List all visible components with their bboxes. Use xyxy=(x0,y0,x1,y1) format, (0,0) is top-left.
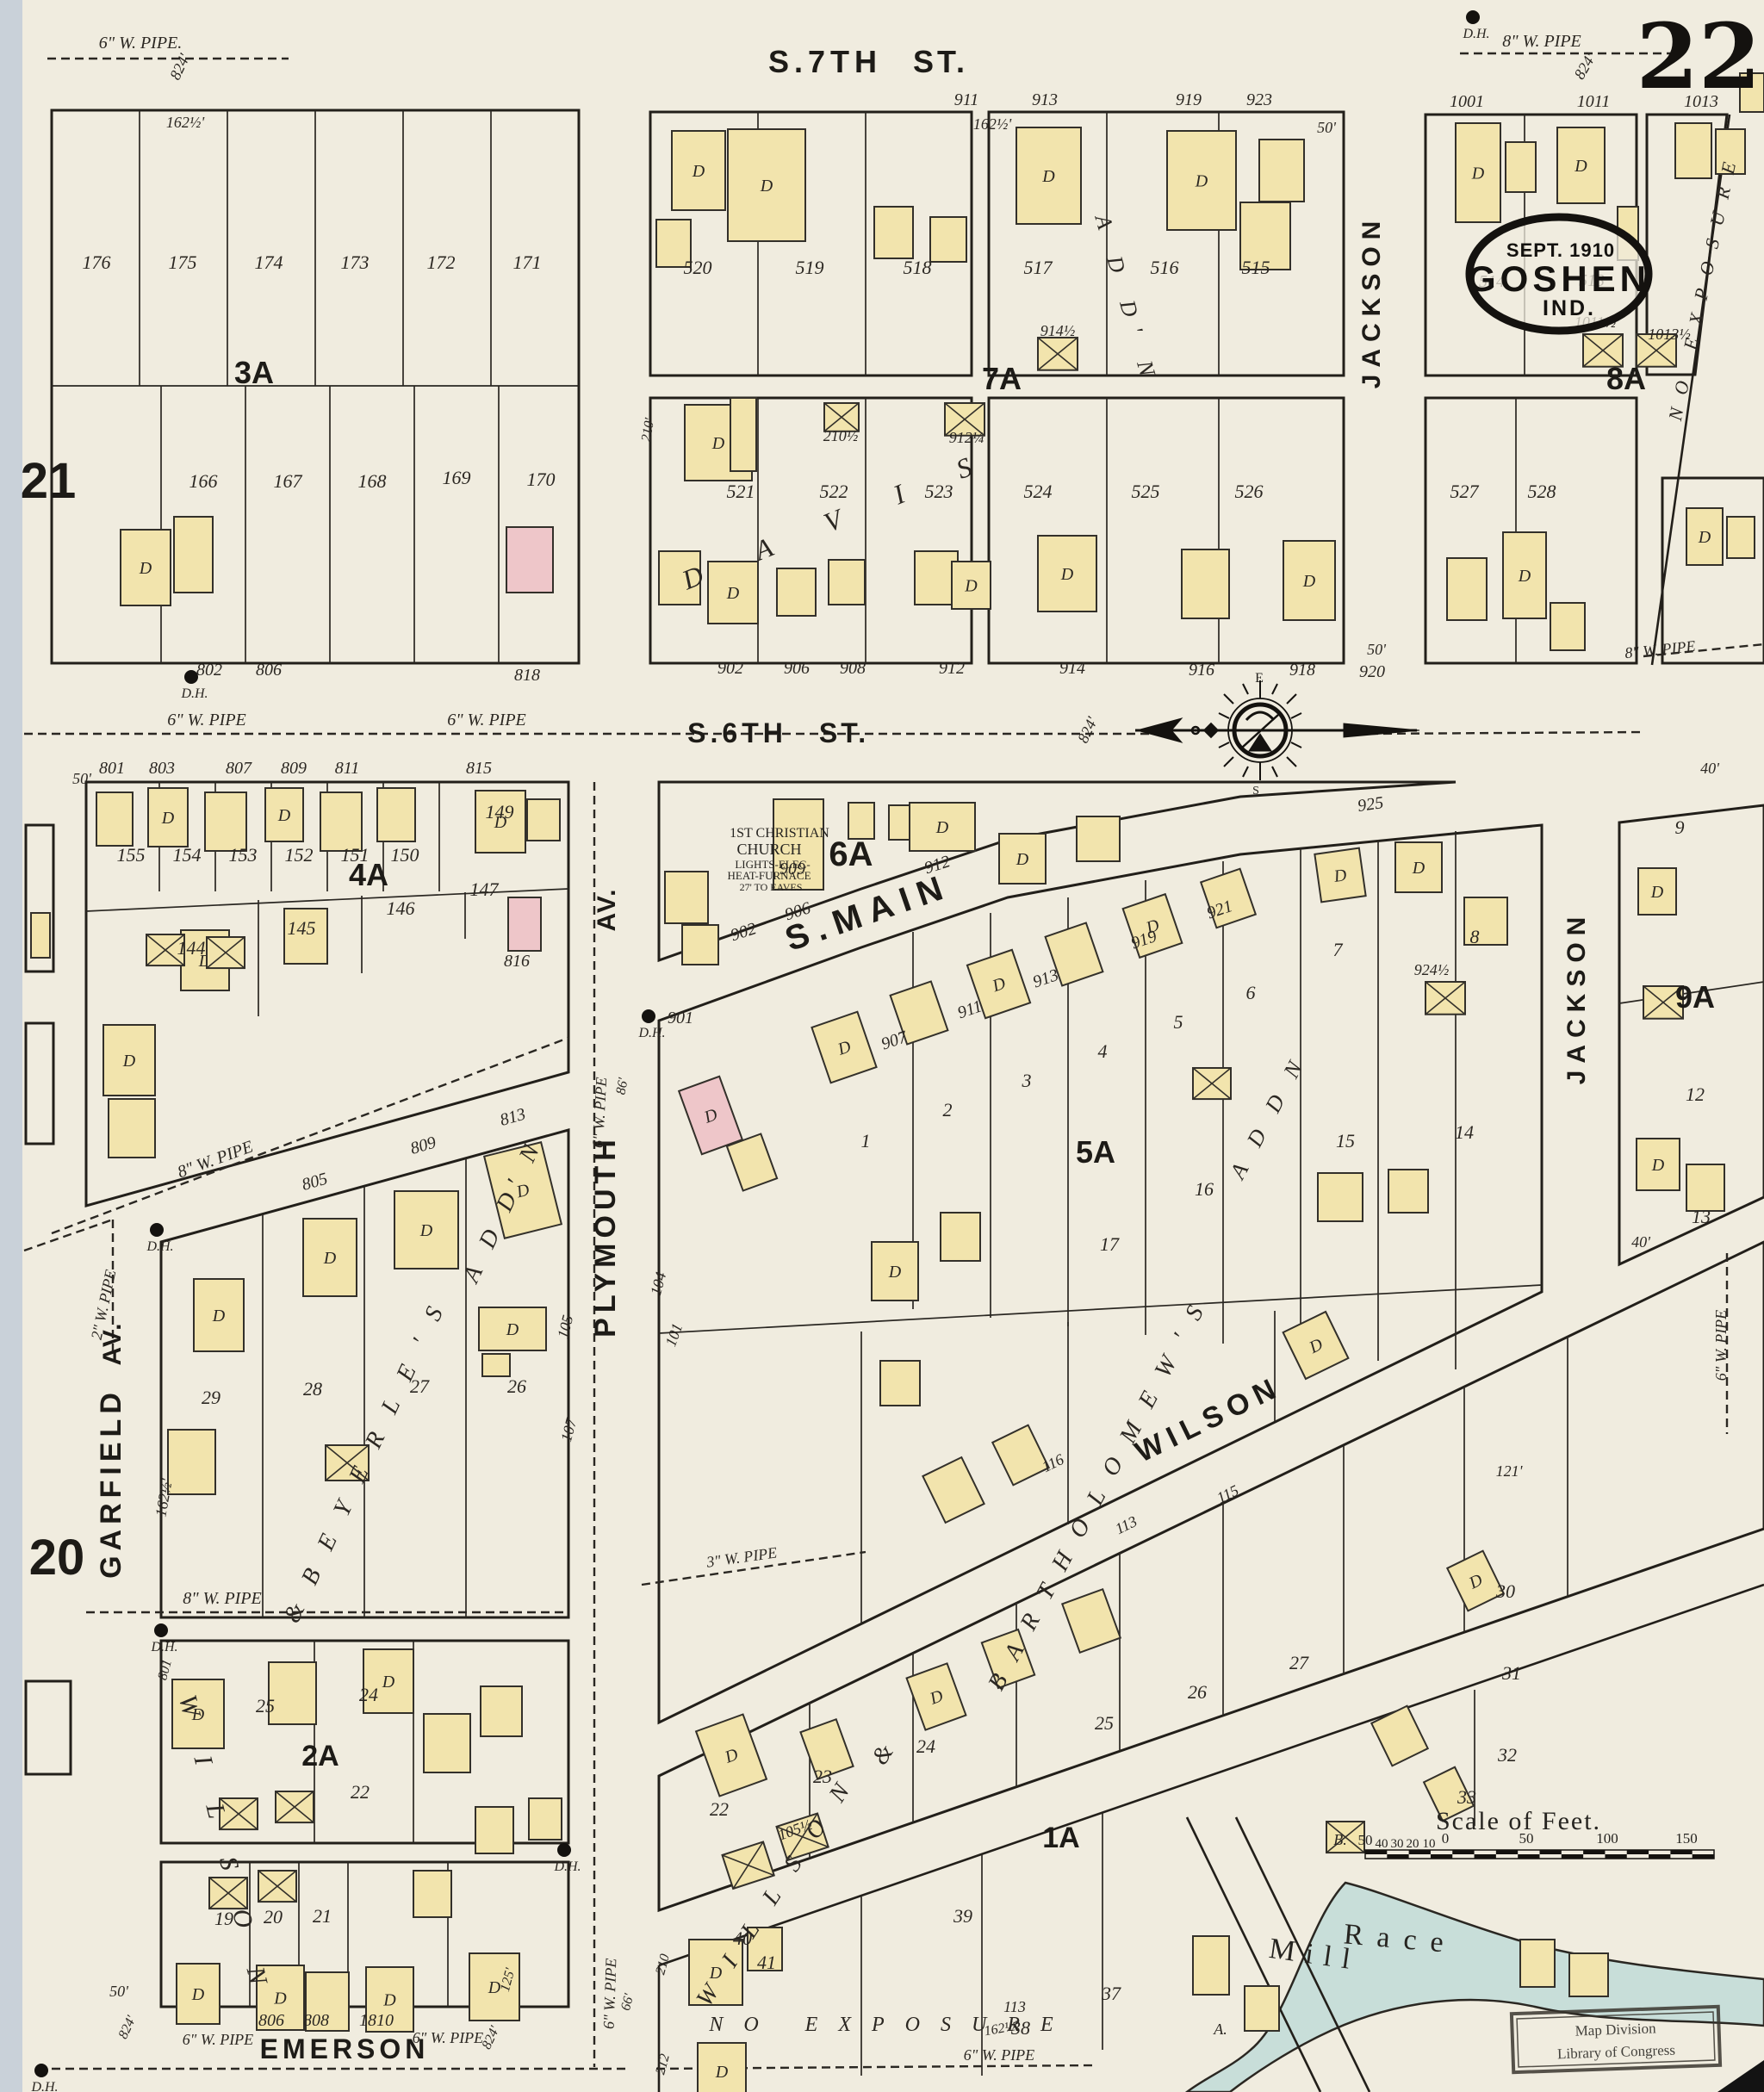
map-number-label: 802 xyxy=(196,661,222,680)
map-number-label: 27 xyxy=(1289,1652,1309,1673)
building-footprint xyxy=(848,803,874,839)
street-or-block-label: EMERSON xyxy=(260,2033,430,2064)
street-or-block-label: 2A xyxy=(301,1740,339,1772)
frame-building xyxy=(941,1213,980,1261)
map-number-label: 901 xyxy=(668,1009,693,1027)
building-footprint: D xyxy=(177,1964,220,2024)
building-footprint xyxy=(508,897,541,951)
annotation-label: 10 xyxy=(1423,1837,1436,1851)
map-number-label: 924½ xyxy=(1414,961,1450,978)
dwelling-mark: D xyxy=(191,1985,205,2004)
building-footprint xyxy=(529,1798,562,1840)
map-number-label: 523 xyxy=(925,481,953,502)
frame-building xyxy=(168,1430,215,1494)
building-footprint: D xyxy=(952,562,991,609)
hydrant-dot xyxy=(150,1223,164,1237)
building-footprint xyxy=(1259,140,1304,202)
hydrant-dot xyxy=(642,1009,655,1023)
dwelling-mark: D xyxy=(964,577,978,596)
scale-cell xyxy=(1540,1850,1562,1854)
street-or-block-label: 7A xyxy=(982,361,1022,396)
map-number-label: 2 xyxy=(943,1099,953,1120)
scale-title: Scale of Feet. xyxy=(1436,1807,1601,1835)
building-footprint: D xyxy=(910,803,975,851)
scale-cell xyxy=(1649,1854,1670,1859)
building-footprint xyxy=(168,1430,215,1494)
map-number-label: 1013½ xyxy=(1648,326,1691,343)
sanborn-map-sheet: DDDDDDDDDDDDDDDDDDDDDDDDDDDDDDDDDDDDDDDD… xyxy=(0,0,1764,2092)
frame-building xyxy=(665,872,708,923)
hydrant-dot xyxy=(1466,10,1480,24)
building-footprint: D xyxy=(194,1279,244,1351)
map-number-label: 12 xyxy=(1686,1083,1705,1105)
barn-icon xyxy=(276,1791,314,1822)
city-name: GOSHEN xyxy=(1468,258,1650,299)
frame-building xyxy=(482,1354,510,1376)
map-number-label: 210½ xyxy=(823,427,859,444)
building-footprint xyxy=(424,1714,470,1772)
barn-icon xyxy=(258,1871,296,1902)
map-number-label: 525 xyxy=(1132,481,1160,502)
building-footprint: D xyxy=(1395,842,1442,892)
street-or-block-label: GARFIELD xyxy=(95,1387,127,1579)
scale-cell xyxy=(1670,1850,1692,1854)
map-number-label: 9 xyxy=(1675,816,1685,838)
map-number-label: 923 xyxy=(1246,90,1272,109)
frame-building xyxy=(1259,140,1304,202)
map-number-label: 920 xyxy=(1359,662,1385,681)
map-number-label: 816 xyxy=(504,952,530,971)
map-number-label: 33 xyxy=(1457,1786,1476,1808)
frame-building xyxy=(96,792,133,846)
building-footprint xyxy=(475,1807,513,1853)
map-number-label: 6" W. PIPE xyxy=(413,2029,483,2046)
frame-building xyxy=(413,1871,451,1917)
map-number-label: 162½' xyxy=(166,114,206,131)
map-number-label: 517 xyxy=(1024,257,1053,278)
building-footprint xyxy=(109,1099,155,1158)
brick-building xyxy=(506,527,553,593)
scale-cell xyxy=(1693,1854,1714,1859)
frame-building xyxy=(930,217,966,262)
building-footprint xyxy=(377,788,415,841)
map-number-label: 6" W. PIPE xyxy=(167,711,246,729)
scale-cell xyxy=(1452,1850,1474,1854)
map-number-label: 145 xyxy=(288,917,316,939)
frame-building xyxy=(527,799,560,841)
building-footprint: D xyxy=(303,1219,357,1296)
hydrant-label: D.H. xyxy=(1462,27,1489,41)
map-number-label: 918 xyxy=(1289,661,1315,680)
scale-cell xyxy=(1562,1854,1583,1859)
map-number-label: 121' xyxy=(1496,1462,1524,1480)
map-number-label: 6" W. PIPE. xyxy=(99,34,183,53)
map-number-label: 23 xyxy=(813,1766,832,1787)
map-number-label: 811 xyxy=(335,759,360,778)
map-number-label: 6" W. PIPE xyxy=(183,2031,253,2048)
map-number-label: 518 xyxy=(904,257,932,278)
building-footprint: D xyxy=(394,1191,458,1269)
dwelling-mark: D xyxy=(382,1991,396,2010)
annotation-label: 40 xyxy=(1376,1837,1388,1851)
street-or-block-label: ST. xyxy=(913,44,968,79)
frame-building xyxy=(269,1662,316,1724)
map-number-label: 6" W. PIPE xyxy=(600,1958,620,2029)
map-number-label: 50' xyxy=(72,770,92,787)
frame-building xyxy=(829,560,865,605)
map-number-label: 906 xyxy=(784,659,810,678)
building-footprint xyxy=(665,872,708,923)
frame-building xyxy=(481,1686,522,1736)
frame-building xyxy=(377,788,415,841)
map-number-label: 166 xyxy=(189,470,218,492)
map-number-label: 40' xyxy=(1700,760,1720,777)
street-or-block-label: 9A xyxy=(1675,979,1715,1015)
map-number-label: 914 xyxy=(1059,659,1085,678)
map-number-label: 22 xyxy=(710,1798,729,1820)
frame-building xyxy=(31,913,50,958)
map-number-label: 86' xyxy=(614,1077,631,1096)
building-footprint xyxy=(777,568,816,616)
map-number-label: 50' xyxy=(109,1983,129,2000)
map-number-label: 806 xyxy=(258,2011,284,2030)
map-number-label: 919 xyxy=(1176,90,1202,109)
building-footprint: D xyxy=(1637,1139,1680,1190)
map-number-label: 24 xyxy=(916,1735,935,1757)
annotation-label: CHURCH xyxy=(736,841,801,858)
map-number-label: 153 xyxy=(229,844,258,866)
map-number-label: 520 xyxy=(684,257,712,278)
map-number-label: 151 xyxy=(341,844,370,866)
building-footprint xyxy=(1388,1170,1428,1213)
annotation-label: 27' TO EAVES xyxy=(740,881,803,893)
dwelling-mark: D xyxy=(692,162,705,181)
map-number-label: 14 xyxy=(1455,1121,1474,1143)
map-number-label: 40 xyxy=(733,1927,752,1949)
map-number-label: 526 xyxy=(1235,481,1264,502)
scale-cell xyxy=(1365,1850,1387,1854)
map-number-label: 914½ xyxy=(1040,322,1076,339)
dwelling-mark: D xyxy=(1302,572,1316,591)
barn-icon xyxy=(1425,982,1465,1015)
building-footprint xyxy=(481,1686,522,1736)
map-number-label: 162½' xyxy=(973,115,1013,133)
frame-building xyxy=(682,925,718,965)
building-footprint xyxy=(1727,517,1755,558)
map-number-label: 168 xyxy=(358,470,387,492)
map-number-label: 41 xyxy=(757,1952,776,1973)
frame-building xyxy=(874,207,913,258)
building-footprint xyxy=(730,398,756,471)
dwelling-mark: D xyxy=(161,809,175,828)
hydrant-label: D.H. xyxy=(30,2080,58,2092)
dwelling-mark: D xyxy=(506,1320,519,1339)
frame-building xyxy=(1520,1940,1555,1987)
map-number-label: 806 xyxy=(256,661,282,680)
scale-cell xyxy=(1583,1850,1605,1854)
building-footprint xyxy=(1569,1953,1608,1996)
building-footprint xyxy=(174,517,213,593)
building-footprint: D xyxy=(1167,131,1236,230)
frame-building xyxy=(1569,1953,1608,1996)
barn-icon xyxy=(207,937,245,968)
scale-cell xyxy=(1518,1854,1539,1859)
building-footprint: D xyxy=(1503,532,1546,618)
street-or-block-label: 1A xyxy=(1042,1822,1079,1854)
annotation-label: 20 xyxy=(1407,1837,1419,1851)
scale-cell xyxy=(1475,1854,1496,1859)
frame-building xyxy=(1245,1986,1279,2031)
dwelling-mark: D xyxy=(1016,850,1029,869)
dwelling-mark: D xyxy=(382,1673,395,1692)
map-number-label: 173 xyxy=(341,251,370,273)
map-number-label: 22 xyxy=(351,1781,370,1803)
dwelling-mark: D xyxy=(1518,567,1531,586)
map-number-label: 25 xyxy=(1095,1712,1114,1734)
street-or-block-label: JACKSON xyxy=(1562,910,1591,1085)
map-number-label: 38 xyxy=(1010,2017,1030,2039)
map-number-label: 516 xyxy=(1151,257,1179,278)
frame-building xyxy=(424,1714,470,1772)
map-number-label: 50' xyxy=(1317,119,1337,136)
frame-building xyxy=(1675,123,1711,178)
map-number-label: 519 xyxy=(796,257,824,278)
adjacent-sheet-21: 21 xyxy=(21,453,77,509)
map-number-label: 521 xyxy=(727,481,755,502)
frame-building xyxy=(320,792,362,851)
map-number-label: 20 xyxy=(264,1906,283,1927)
frame-building xyxy=(777,568,816,616)
street-or-block-label: JACKSON xyxy=(1357,214,1386,389)
frame-building xyxy=(174,517,213,593)
building-footprint xyxy=(941,1213,980,1261)
frame-building xyxy=(1077,816,1120,861)
building-footprint: D xyxy=(999,834,1046,884)
map-number-label: 912 xyxy=(939,659,965,678)
frame-building xyxy=(848,803,874,839)
street-or-block-label: PLYMOUTH xyxy=(589,1134,622,1338)
hydrant-dot xyxy=(557,1843,571,1857)
map-number-label: 40' xyxy=(1631,1233,1651,1251)
hydrant-dot xyxy=(154,1623,168,1637)
building-footprint xyxy=(1318,1173,1363,1221)
map-number-label: 28 xyxy=(303,1378,322,1400)
map-number-label: 1810 xyxy=(359,2011,394,2030)
building-footprint xyxy=(930,217,966,262)
dwelling-mark: D xyxy=(1412,859,1425,878)
map-number-label: 26 xyxy=(1188,1681,1207,1703)
building-footprint: D xyxy=(698,2043,746,2092)
map-number-label: 807 xyxy=(226,759,252,778)
building-footprint: D xyxy=(1283,541,1335,620)
building-footprint: D xyxy=(1638,868,1676,915)
map-number-label: 113 xyxy=(1003,1998,1026,2015)
map-number-label: 149 xyxy=(486,801,514,823)
map-number-label: 8" W. PIPE xyxy=(1502,32,1581,51)
hydrant-dot xyxy=(34,2064,48,2077)
annotation-label: 50 xyxy=(1358,1832,1373,1848)
frame-building xyxy=(1193,1936,1229,1995)
dwelling-mark: D xyxy=(760,177,773,196)
building-footprint xyxy=(874,207,913,258)
dwelling-mark: D xyxy=(212,1307,226,1325)
map-number-label: 171 xyxy=(513,251,542,273)
frame-building xyxy=(205,792,246,851)
map-number-label: 3 xyxy=(1022,1070,1032,1091)
map-number-label: 6 xyxy=(1246,982,1256,1003)
building-footprint xyxy=(96,792,133,846)
building-footprint xyxy=(1447,558,1487,620)
map-number-label: 50' xyxy=(1367,641,1387,658)
map-canvas: DDDDDDDDDDDDDDDDDDDDDDDDDDDDDDDDDDDDDDDD… xyxy=(0,0,1764,2092)
dwelling-mark: D xyxy=(888,1263,902,1282)
frame-building xyxy=(880,1361,920,1406)
map-number-label: 8 xyxy=(1470,926,1480,947)
map-number-label: 21 xyxy=(313,1905,332,1927)
street-or-block-label: 5A xyxy=(1076,1134,1115,1170)
building-footprint: D xyxy=(265,788,303,841)
annotation-label: 30 xyxy=(1391,1837,1404,1851)
street-or-block-label: ST. xyxy=(819,717,869,748)
map-number-label: 925 xyxy=(1357,793,1385,816)
street-or-block-label: AV. xyxy=(593,887,621,931)
map-number-label: 39 xyxy=(953,1905,972,1927)
barn-icon xyxy=(1193,1068,1231,1099)
map-number-label: 515 xyxy=(1242,257,1270,278)
building-footprint: D xyxy=(1557,127,1605,203)
dwelling-mark: D xyxy=(277,806,291,825)
dwelling-mark: D xyxy=(1574,157,1587,176)
dwelling-mark: D xyxy=(1650,883,1664,902)
map-number-label: 6" W. PIPE xyxy=(447,711,526,729)
building-footprint: D xyxy=(1038,536,1096,611)
frame-building xyxy=(1447,558,1487,620)
scale-cell xyxy=(1627,1850,1649,1854)
map-number-label: 167 xyxy=(274,470,303,492)
map-number-label: 7 xyxy=(1333,939,1344,960)
hydrant-label: D.H. xyxy=(180,686,208,701)
barn-icon xyxy=(1038,338,1078,370)
dwelling-mark: D xyxy=(715,2063,729,2082)
building-footprint: D xyxy=(121,530,171,605)
building-footprint xyxy=(1506,142,1536,192)
building-footprint: D xyxy=(1314,848,1365,903)
map-number-label: 809 xyxy=(281,759,307,778)
map-number-label: 37 xyxy=(1101,1983,1121,2004)
dwelling-mark: D xyxy=(711,434,725,453)
building-footprint xyxy=(889,805,910,840)
annotation-label: 150 xyxy=(1675,1830,1698,1847)
building-footprint xyxy=(320,792,362,851)
map-number-label: 8" W. PIPE xyxy=(183,1589,262,1608)
building-footprint xyxy=(269,1662,316,1724)
map-number-label: 19 xyxy=(214,1908,233,1929)
map-number-label: 1 xyxy=(861,1130,871,1152)
scale-cell xyxy=(1605,1854,1626,1859)
frame-building xyxy=(1727,517,1755,558)
map-number-label: 5 xyxy=(1174,1011,1183,1033)
map-number-label: B. xyxy=(1333,1831,1347,1848)
scale-cell xyxy=(1496,1850,1518,1854)
dwelling-mark: D xyxy=(1060,565,1074,584)
building-footprint xyxy=(1675,123,1711,178)
map-number-label: 31 xyxy=(1501,1662,1521,1684)
map-number-label: 524 xyxy=(1024,481,1053,502)
brick-building xyxy=(508,897,541,951)
building-footprint: D xyxy=(1456,123,1500,222)
building-footprint xyxy=(1193,1936,1229,1995)
building-footprint xyxy=(1182,549,1229,618)
map-number-label: 528 xyxy=(1528,481,1556,502)
dwelling-mark: D xyxy=(323,1249,337,1268)
map-number-label: 527 xyxy=(1450,481,1480,502)
building-footprint: D xyxy=(103,1025,155,1096)
frame-building xyxy=(889,805,910,840)
building-footprint: D xyxy=(872,1242,918,1301)
map-number-label: 27 xyxy=(410,1375,430,1397)
dwelling-mark: D xyxy=(935,818,949,837)
frame-building xyxy=(730,398,756,471)
map-number-label: 815 xyxy=(466,759,492,778)
map-number-label: 146 xyxy=(387,897,415,919)
map-number-label: 916 xyxy=(1189,661,1214,680)
building-footprint xyxy=(413,1871,451,1917)
building-footprint xyxy=(1550,603,1585,650)
map-number-label: 4 xyxy=(1098,1040,1108,1062)
frame-building xyxy=(1388,1170,1428,1213)
scale-cell xyxy=(1431,1854,1452,1859)
building-footprint xyxy=(205,792,246,851)
map-number-label: 818 xyxy=(514,666,540,685)
dwelling-mark: D xyxy=(1195,172,1208,191)
map-number-label: 26 xyxy=(507,1375,526,1397)
building-footprint xyxy=(829,560,865,605)
map-number-label: 902 xyxy=(717,659,743,678)
map-number-label: 13 xyxy=(1692,1206,1711,1227)
street-or-block-label: S.7TH xyxy=(768,44,882,79)
map-number-label: 32 xyxy=(1497,1744,1517,1766)
annotation-label: HEAT-FURNACE xyxy=(727,869,811,882)
map-number-label: 803 xyxy=(149,759,175,778)
dwelling-mark: D xyxy=(726,584,740,603)
building-footprint xyxy=(1520,1940,1555,1987)
map-number-label: 16 xyxy=(1195,1178,1214,1200)
frame-building xyxy=(1550,603,1585,650)
street-or-block-label: S.6TH xyxy=(687,717,787,748)
frame-building xyxy=(1318,1173,1363,1221)
frame-building xyxy=(1182,549,1229,618)
map-number-label: 908 xyxy=(840,659,866,678)
map-number-label: 801 xyxy=(99,759,125,778)
state-name: IND. xyxy=(1543,296,1596,320)
frame-building xyxy=(475,1807,513,1853)
map-number-label: 174 xyxy=(255,251,283,273)
frame-building xyxy=(1506,142,1536,192)
hydrant-label: D.H. xyxy=(637,1026,665,1040)
building-footprint xyxy=(31,913,50,958)
dwelling-mark: D xyxy=(139,559,152,578)
dwelling-mark: D xyxy=(419,1221,433,1240)
building-footprint xyxy=(880,1361,920,1406)
sheet-number: 22 xyxy=(1637,3,1761,109)
dwelling-mark: D xyxy=(1041,167,1055,186)
frame-building xyxy=(109,1099,155,1158)
building-footprint: D xyxy=(1686,508,1723,565)
building-footprint xyxy=(527,799,560,841)
building-footprint: D xyxy=(672,131,725,210)
map-number-label: A. xyxy=(1213,2021,1227,2038)
annotation-label: 1ST CHRISTIAN xyxy=(730,826,829,841)
